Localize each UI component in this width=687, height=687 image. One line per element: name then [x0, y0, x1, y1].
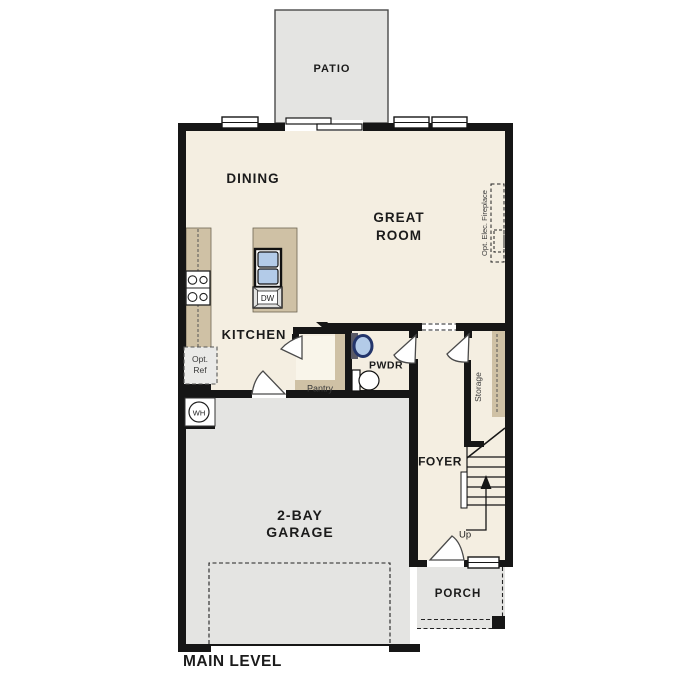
- stairs-up-label: Up: [459, 530, 471, 541]
- pwdr-sink-icon: [351, 333, 372, 359]
- dw-label: DW: [261, 294, 275, 303]
- wall-right: [505, 123, 513, 567]
- opt-ref-label-2: Ref: [193, 365, 207, 375]
- wh-label: WH: [193, 409, 206, 418]
- fireplace-note-label: Opt. Elec. Fireplace: [480, 190, 489, 256]
- room-great-label-1: GREAT: [373, 210, 424, 225]
- wall-storage-left: [464, 360, 471, 442]
- wall-bottom-left: [178, 644, 211, 652]
- toilet-icon: [352, 370, 379, 391]
- room-garage-label-2: GARAGE: [266, 524, 333, 540]
- opt-ref-label-1: Opt.: [192, 354, 208, 364]
- room-foyer-label: FOYER: [418, 455, 462, 469]
- patio-door-panel-2: [317, 124, 362, 130]
- floor-plan-page: DW Opt. Ref WH PATIO DINING GREAT ROOM K…: [0, 0, 687, 687]
- plan-title: MAIN LEVEL: [183, 653, 282, 670]
- dishwasher-icon: DW: [253, 287, 282, 308]
- wall-pantry-pwdr: [345, 331, 352, 398]
- garage-door-line: [210, 644, 390, 646]
- room-kitchen-label: KITCHEN: [222, 327, 287, 342]
- cased-opening: [422, 323, 456, 331]
- wall-pantry-top: [293, 327, 348, 334]
- water-heater-icon: WH: [185, 398, 215, 426]
- room-dining-label: DINING: [226, 171, 279, 186]
- room-storage-label: Storage: [473, 372, 483, 402]
- room-porch-label: PORCH: [435, 588, 482, 600]
- room-garage-label-1: 2-BAY: [277, 507, 323, 523]
- range-icon: [186, 271, 210, 305]
- opt-ref-icon: Opt. Ref: [184, 347, 217, 384]
- room-pwdr-label: PWDR: [369, 360, 403, 372]
- wall-greatroom-bottom: [322, 323, 513, 331]
- room-patio-label: PATIO: [314, 63, 351, 75]
- stair-handrail: [461, 472, 467, 508]
- floor-plan-drawing: DW Opt. Ref WH PATIO DINING GREAT ROOM K…: [0, 0, 687, 687]
- entry-door-gap: [427, 560, 464, 567]
- kitchen-sink-icon: [255, 249, 281, 287]
- room-pantry-label: Pantry: [307, 384, 334, 394]
- wall-bottom-right: [389, 644, 420, 652]
- porch-post: [492, 616, 505, 629]
- room-great-label-2: ROOM: [376, 228, 422, 243]
- patio-door-panel-1: [286, 118, 331, 124]
- wall-entry-left: [409, 560, 428, 567]
- storage-shelf: [492, 331, 505, 417]
